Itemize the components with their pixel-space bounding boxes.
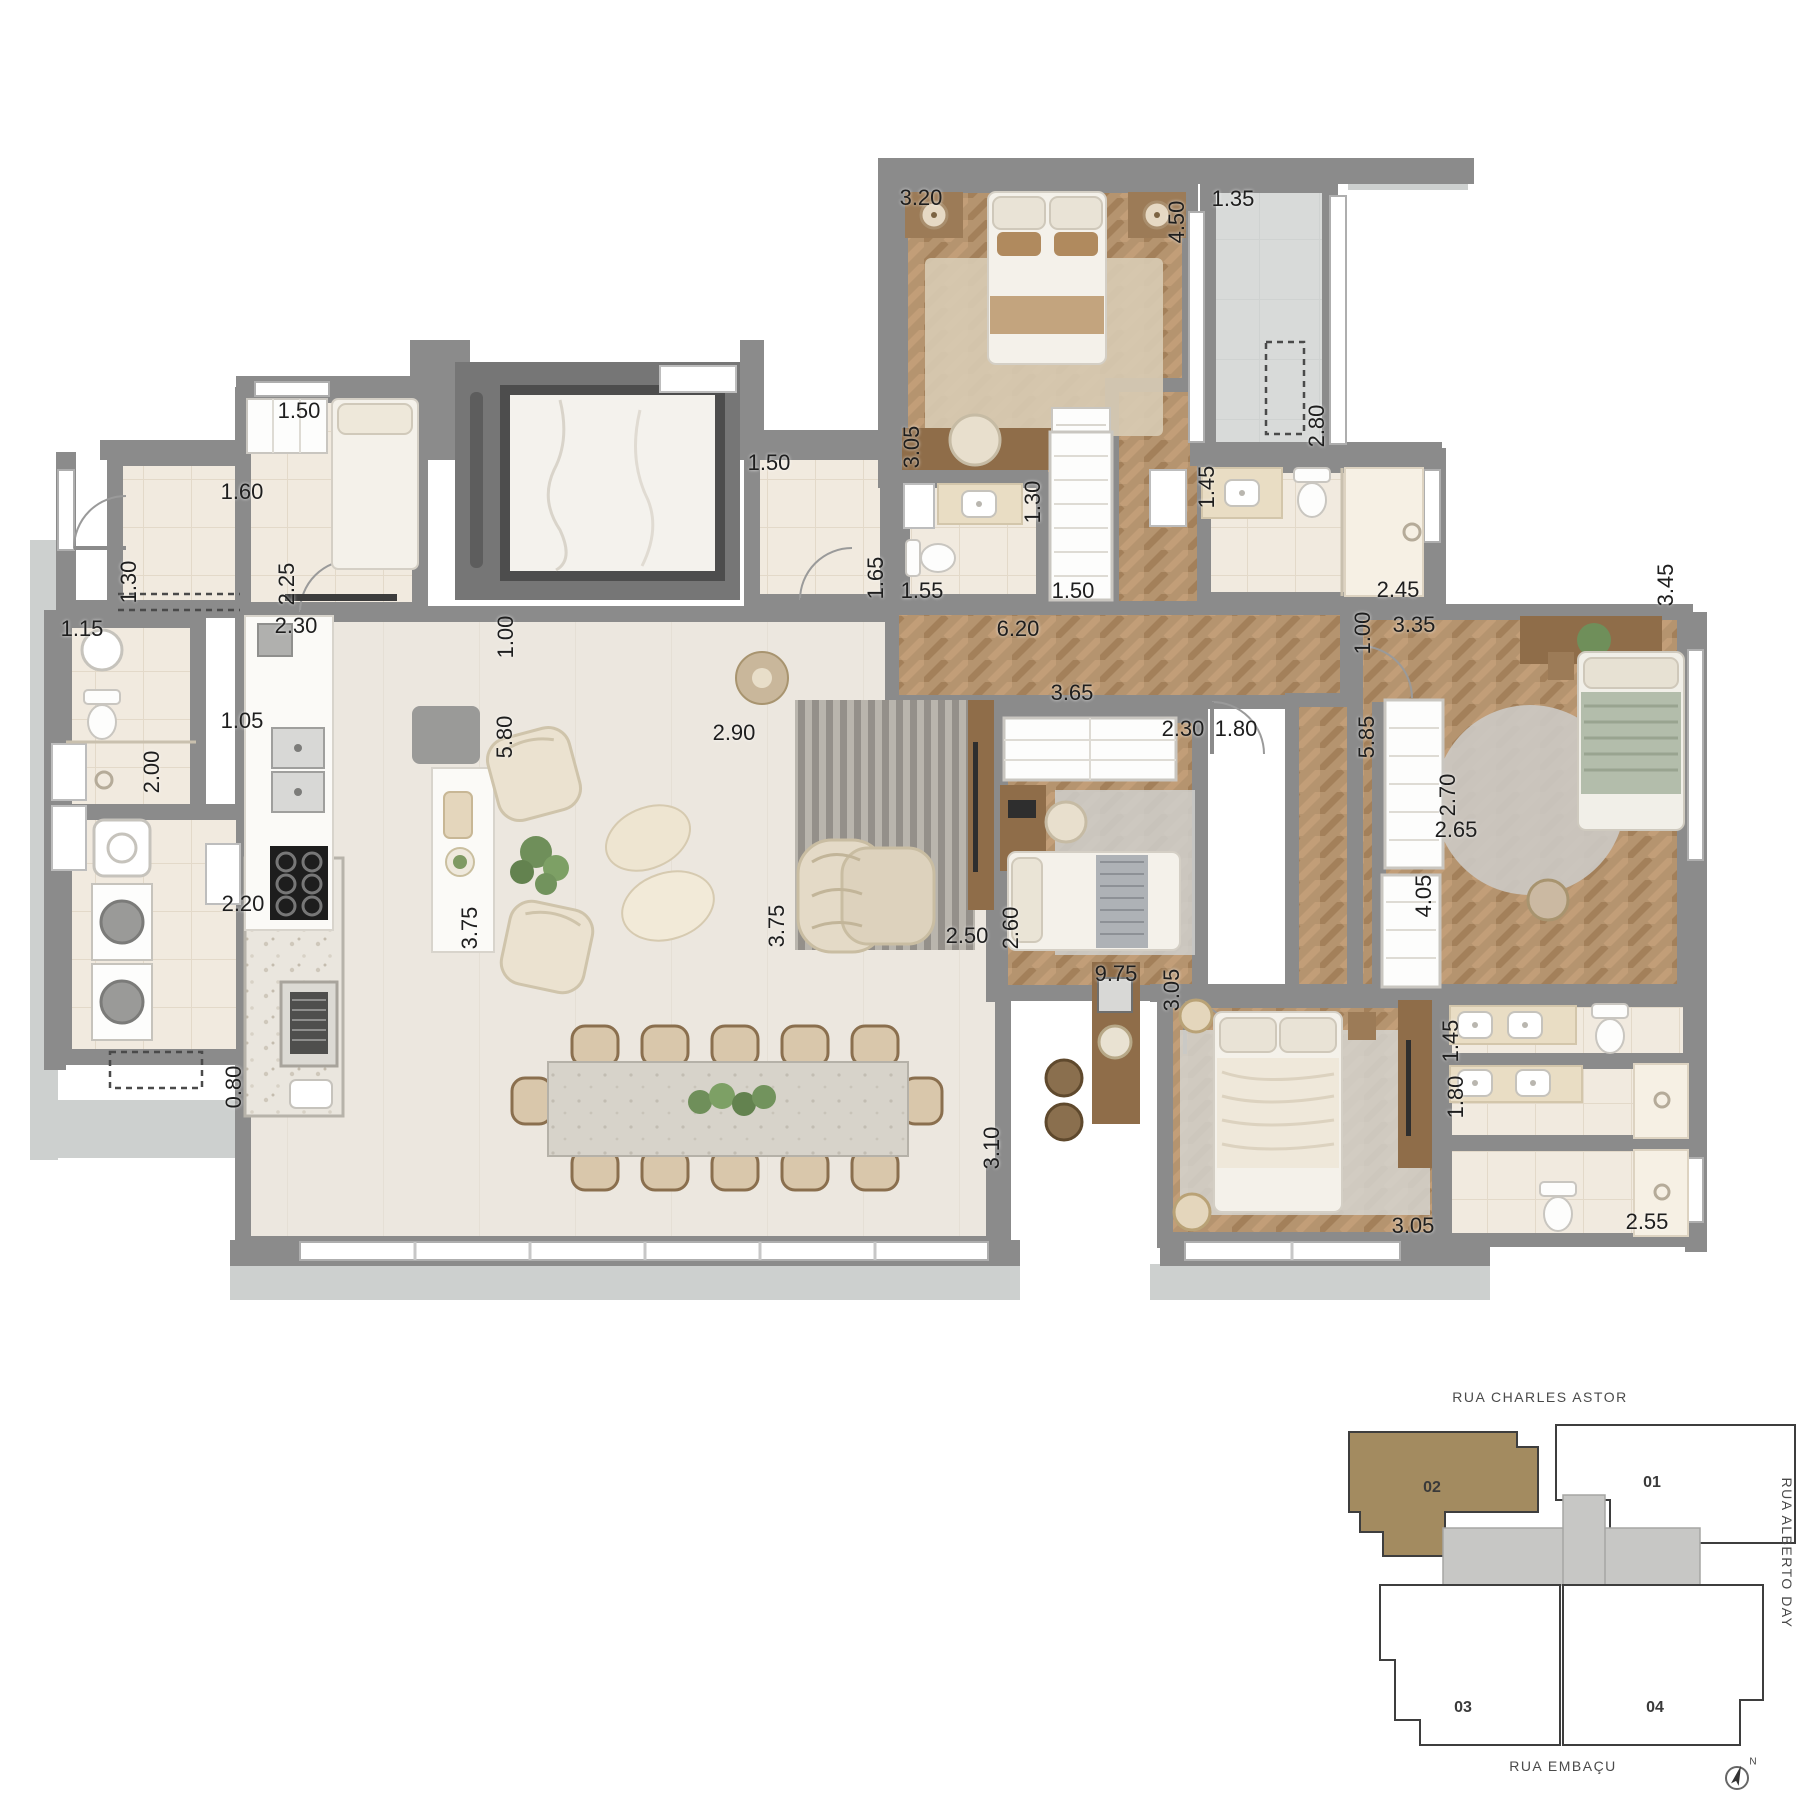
- keyplan-unit-03-shape: [1380, 1585, 1560, 1745]
- master-suite-furniture: [1174, 1000, 1432, 1230]
- tv-panel: [968, 700, 994, 910]
- corridor-floor: [892, 608, 1354, 702]
- elevator-handrail: [470, 392, 483, 568]
- bbq-sink: [290, 1080, 332, 1108]
- closet: [247, 399, 327, 453]
- tv: [973, 742, 978, 872]
- island-appliance: [412, 706, 480, 764]
- private-elevator: [455, 362, 740, 600]
- lobby-hall-floor: [752, 452, 888, 602]
- desk-chair: [1046, 802, 1086, 842]
- round-sink: [82, 630, 122, 670]
- laundry-fixtures: [92, 820, 152, 1040]
- keyplan-unit-04-shape: [1563, 1585, 1763, 1745]
- bar-stool: [1046, 1104, 1082, 1140]
- nightstand: [1348, 1012, 1376, 1040]
- shower: [1345, 468, 1423, 596]
- laundry-sink: [94, 820, 150, 876]
- shower: [1634, 1064, 1688, 1138]
- monitor: [1008, 800, 1036, 818]
- dining-table: [548, 1062, 908, 1156]
- bedroom2-furniture: [1000, 718, 1195, 955]
- entry-hall-floor: [115, 458, 243, 610]
- appliance: [258, 624, 292, 656]
- sofa: [798, 840, 934, 952]
- desk-chair: [950, 415, 1000, 465]
- dining-furniture: [512, 1026, 942, 1190]
- nightstand: [1548, 652, 1574, 680]
- suite1-furniture: [902, 192, 1186, 470]
- floor-plan-drawing: [0, 0, 1800, 1800]
- tv: [1406, 1040, 1411, 1136]
- balcony-floor: [1208, 185, 1330, 450]
- tv-panel: [1398, 1000, 1432, 1168]
- keyplan: [1349, 1425, 1795, 1789]
- floor-plan-page: RUA CHARLES ASTOR RUA ALBERTO DAY RUA EM…: [0, 0, 1800, 1800]
- north-arrow-icon: [1726, 1764, 1748, 1789]
- pouf: [1180, 1000, 1212, 1032]
- pouf: [1528, 880, 1568, 920]
- bar-stool: [1046, 1060, 1082, 1096]
- dining-chair: [512, 1078, 552, 1124]
- barbecue-fixtures: [281, 982, 337, 1108]
- tv: [285, 594, 397, 601]
- pouf: [1174, 1194, 1210, 1230]
- closet-wardrobe: [1050, 432, 1112, 600]
- shower: [1634, 1150, 1688, 1236]
